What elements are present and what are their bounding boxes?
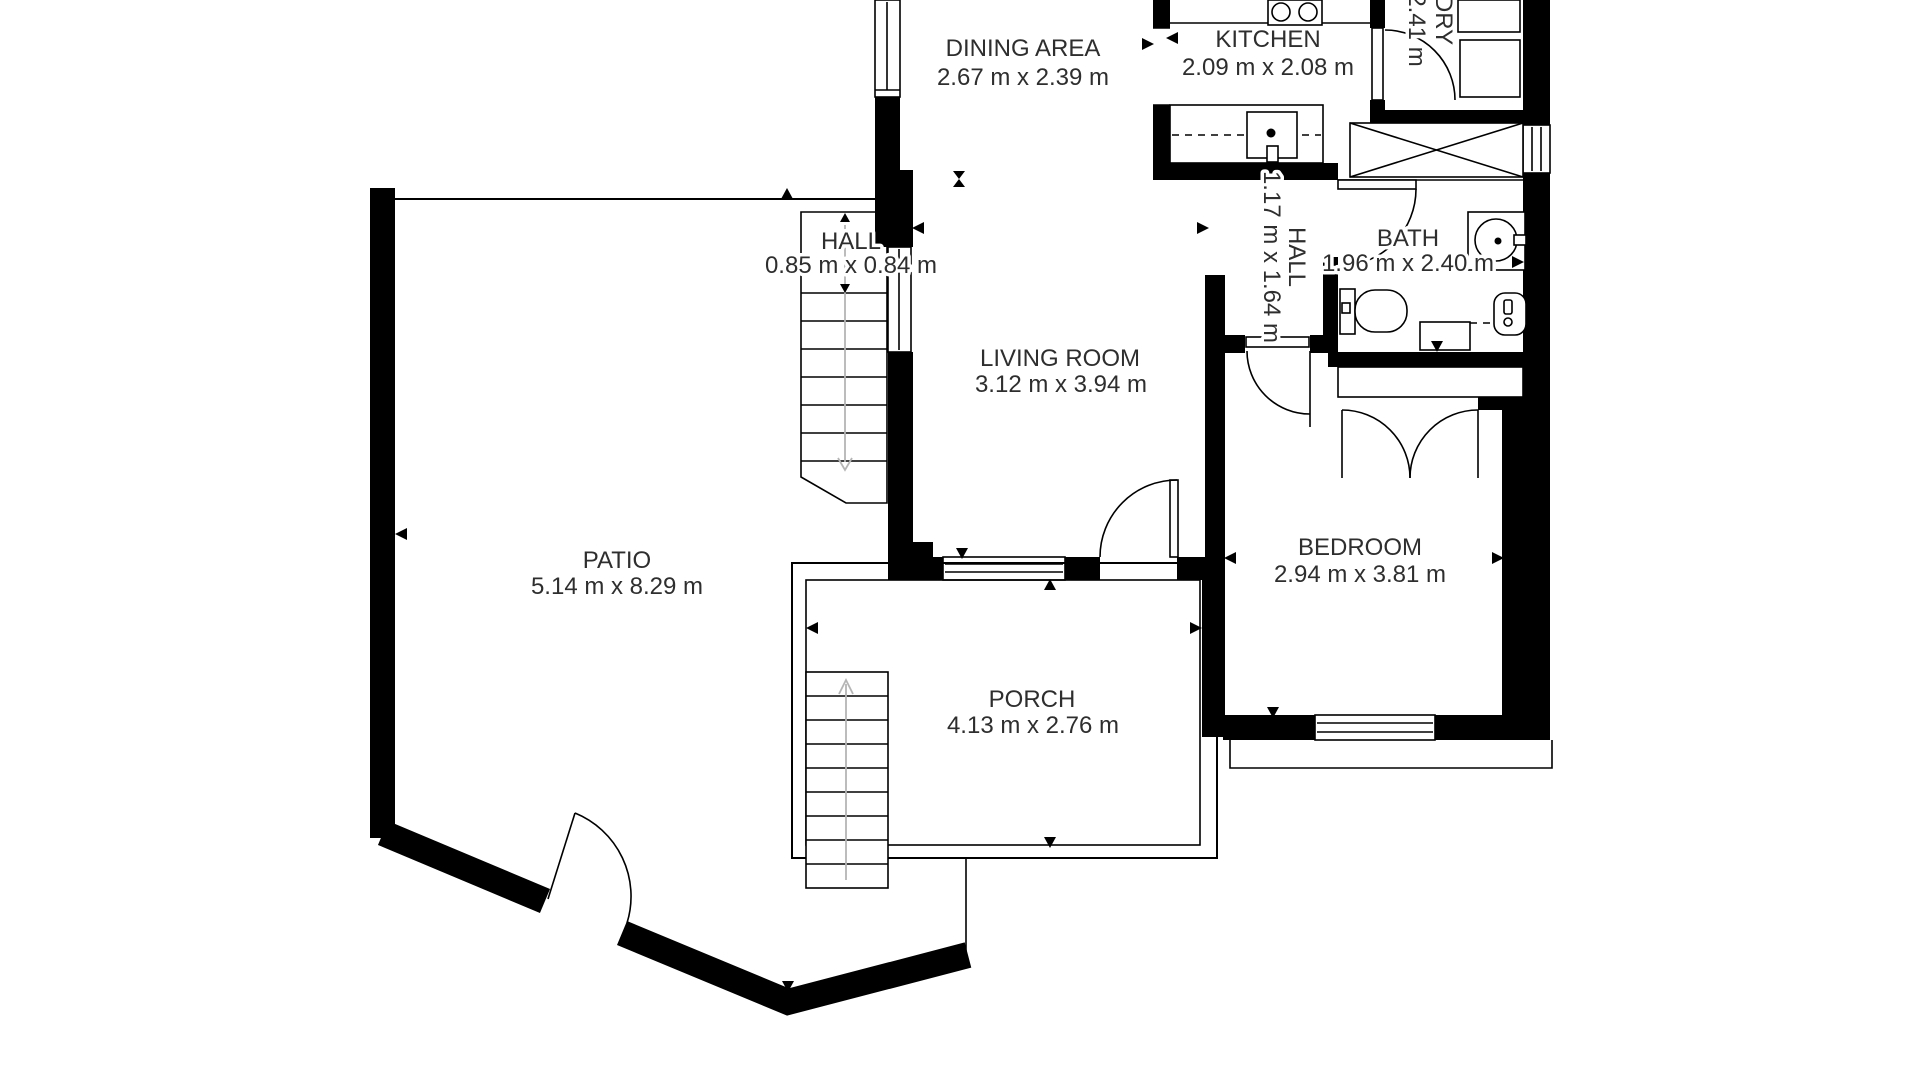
laundry-door (1372, 28, 1383, 100)
label-living-dims: 3.12 m x 3.94 m (975, 371, 1147, 398)
staircase-porch (806, 672, 888, 888)
porch-bedroom-wall (1202, 557, 1225, 737)
shower-tray-icon (1420, 322, 1494, 350)
label-dining-name: DINING AREA (946, 35, 1101, 62)
label-hall-upper-name: HALL (821, 228, 881, 255)
living-hall-wall (1205, 275, 1225, 557)
label-hall-lower-name: HALL (1283, 227, 1310, 287)
floor-plan-page: DINING AREA 2.67 m x 2.39 m KITCHEN 2.09… (0, 0, 1920, 1080)
laundry-appliances (1458, 0, 1520, 97)
label-hall-lower-dims: 1.17 m x 1.64 m (1258, 171, 1285, 343)
closet-door-arc (1410, 410, 1478, 478)
bidet-icon (1494, 293, 1526, 335)
label-laundry-name: LAUNDRY (1430, 0, 1457, 45)
label-dining-dims: 2.67 m x 2.39 m (937, 64, 1109, 91)
label-bath-dims: 1.96 m x 2.40 m (1322, 250, 1494, 277)
kitchen-top-counter (1170, 0, 1370, 25)
label-living-name: LIVING ROOM (980, 345, 1140, 372)
label-patio-dims: 5.14 m x 8.29 m (531, 573, 703, 600)
label-hall-upper-dims: 0.85 m x 0.84 m (765, 252, 937, 279)
closet-door-arc (1342, 410, 1410, 478)
window (1315, 715, 1435, 740)
living-bottom-wall (912, 480, 1225, 580)
sink-icon (1247, 112, 1297, 162)
laundry-bottom-wall (1385, 110, 1523, 123)
label-kitchen-dims: 2.09 m x 2.08 m (1182, 54, 1354, 81)
label-kitchen-name: KITCHEN (1215, 26, 1320, 53)
stove-icon (1268, 0, 1322, 25)
kitchen-island-counter (1170, 105, 1323, 163)
bedroom-door (1246, 337, 1310, 427)
label-laundry-dims: 2.41 m (1403, 0, 1430, 67)
window (875, 0, 900, 97)
right-wall-upper (1523, 0, 1550, 410)
window (1523, 125, 1550, 173)
label-porch-dims: 4.13 m x 2.76 m (947, 712, 1119, 739)
label-porch-name: PORCH (989, 686, 1076, 713)
porch-door (1100, 480, 1178, 557)
floor-plan-canvas: DINING AREA 2.67 m x 2.39 m KITCHEN 2.09… (0, 0, 1920, 1080)
bedroom-door-wall (1223, 335, 1332, 427)
washing-machine-icon (1350, 123, 1523, 177)
dryer-icon (1460, 40, 1520, 97)
kitchen-left-wall (1153, 0, 1170, 180)
hall-top-wall (1153, 163, 1338, 180)
label-bedroom-name: BEDROOM (1298, 534, 1422, 561)
washer-icon (1458, 0, 1520, 32)
bedroom-step (1230, 740, 1552, 768)
label-patio-name: PATIO (583, 547, 651, 574)
toilet-icon (1340, 289, 1407, 334)
label-bedroom-dims: 2.94 m x 3.81 m (1274, 561, 1446, 588)
bedroom-closet (1338, 367, 1523, 478)
label-bath-name: BATH (1377, 225, 1439, 252)
window (943, 557, 1065, 580)
patio-door (548, 813, 631, 923)
